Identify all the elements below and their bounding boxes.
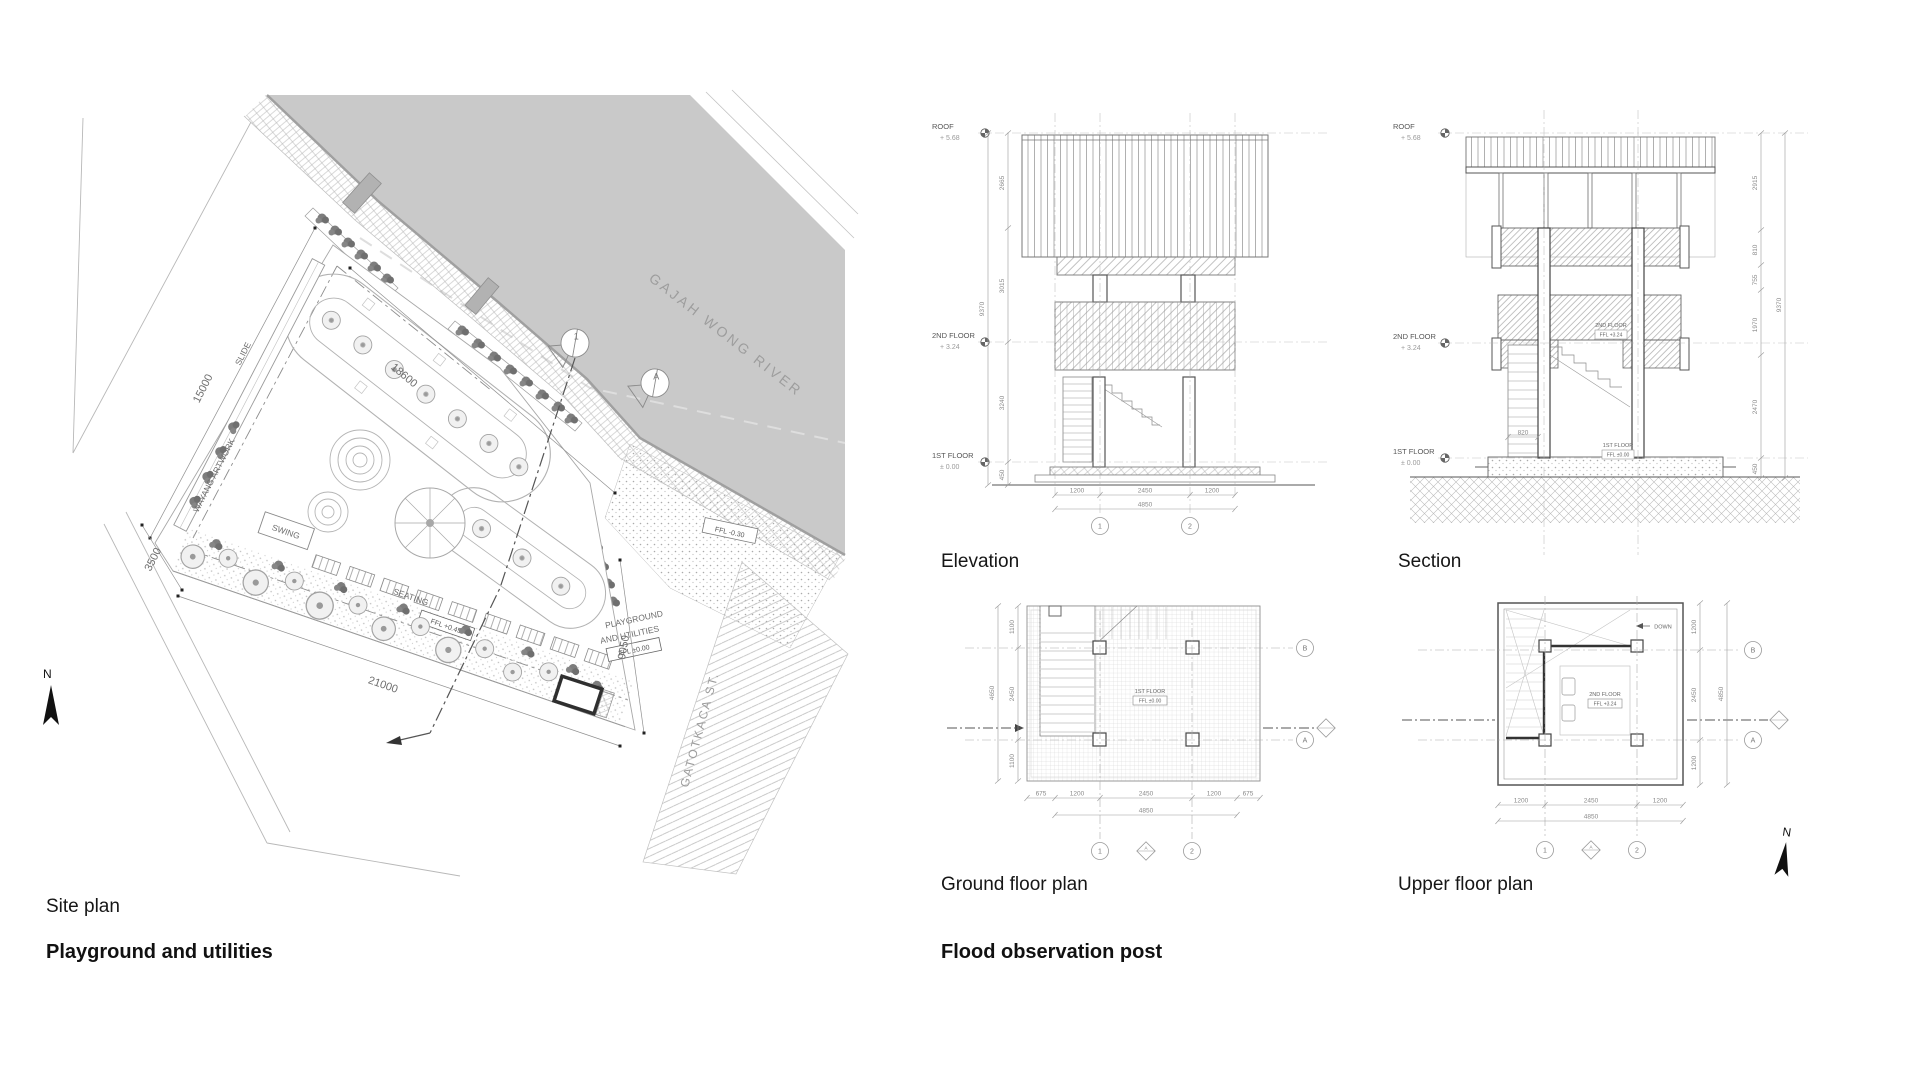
svg-text:1ST FLOOR: 1ST FLOOR <box>1393 447 1435 456</box>
dim-21000: 21000 <box>367 675 400 696</box>
svg-text:1: 1 <box>574 332 579 342</box>
ground-floor-caption: Ground floor plan <box>941 874 1088 896</box>
svg-text:1200: 1200 <box>1070 791 1085 798</box>
svg-text:1100: 1100 <box>1009 620 1016 634</box>
svg-text:2450: 2450 <box>1139 791 1154 798</box>
svg-text:4650: 4650 <box>989 685 996 700</box>
center-tag: 2ND FLOOR FFL +3.24 <box>1588 692 1622 708</box>
svg-text:ROOF: ROOF <box>932 122 954 131</box>
svg-text:450: 450 <box>999 469 1006 480</box>
right-title: Flood observation post <box>941 941 1162 964</box>
svg-text:675: 675 <box>1243 791 1254 798</box>
section-caption: Section <box>1398 551 1461 573</box>
svg-text:2450: 2450 <box>1584 798 1599 805</box>
svg-text:FFL ±0.00: FFL ±0.00 <box>1607 453 1630 459</box>
svg-text:2ND FLOOR: 2ND FLOOR <box>1589 692 1621 698</box>
street-paving <box>643 562 848 874</box>
round-plaza <box>395 488 465 558</box>
section-diamond-bottom: A <box>1582 841 1600 859</box>
svg-text:4850: 4850 <box>1718 686 1725 701</box>
elevation-drawing: ROOF + 5.68 2ND FLOOR + 3.24 1ST FLOOR ±… <box>930 95 1340 565</box>
left-dimensions <box>995 603 1021 783</box>
section-diamond-bottom: A <box>1137 842 1155 860</box>
svg-text:± 0.00: ± 0.00 <box>940 464 960 471</box>
grid-bubble-a: A <box>1745 732 1762 749</box>
svg-text:DOWN: DOWN <box>1654 625 1671 631</box>
drawing-sheet: { "captions": { "site_plan": "Site plan"… <box>0 0 1920 1080</box>
upper-floor-plan-drawing: DOWN 2ND FLOOR FFL +3.24 1200 2450 1200 … <box>1400 588 1820 888</box>
svg-text:FFL ±0.00: FFL ±0.00 <box>1139 699 1162 705</box>
svg-text:A: A <box>653 372 659 382</box>
grid-bubble-a: A <box>1297 732 1314 749</box>
bottom-dimensions <box>1024 795 1262 818</box>
svg-text:1200: 1200 <box>1514 798 1529 805</box>
svg-text:1200: 1200 <box>1070 488 1085 495</box>
grid-bubble-2: 2 <box>1182 518 1199 535</box>
svg-text:2450: 2450 <box>1138 488 1153 495</box>
svg-text:1: 1 <box>1098 524 1102 531</box>
svg-text:+ 5.68: + 5.68 <box>940 135 960 142</box>
svg-text:+ 5.68: + 5.68 <box>1401 135 1421 142</box>
level-1st: 1ST FLOOR ± 0.00 <box>932 451 989 471</box>
svg-text:2915: 2915 <box>1752 175 1759 190</box>
svg-text:1: 1 <box>1543 848 1547 855</box>
svg-text:2450: 2450 <box>1691 687 1698 702</box>
grid-bubble-2: 2 <box>1184 843 1201 860</box>
svg-text:9370: 9370 <box>1776 297 1783 312</box>
svg-text:2665: 2665 <box>999 175 1006 190</box>
level-roof: ROOF + 5.68 <box>932 122 989 142</box>
svg-text:+ 3.24: + 3.24 <box>1401 345 1421 352</box>
svg-text:755: 755 <box>1752 274 1759 285</box>
svg-text:2ND FLOOR: 2ND FLOOR <box>1393 332 1437 341</box>
grid-bubble-1: 1 <box>1092 843 1109 860</box>
svg-text:1200: 1200 <box>1207 791 1222 798</box>
north-arrow: N <box>1774 824 1795 876</box>
svg-text:FFL +3.24: FFL +3.24 <box>1600 333 1623 339</box>
svg-text:2ND FLOOR: 2ND FLOOR <box>932 331 976 340</box>
svg-text:1200: 1200 <box>1691 755 1698 770</box>
ground-floor-plan-drawing: 1ST FLOOR FFL ±0.00 1100 2450 1100 4650 … <box>945 593 1340 883</box>
vertical-dimensions <box>1758 130 1788 480</box>
svg-text:2: 2 <box>1190 849 1194 856</box>
level-2nd: 2ND FLOOR + 3.24 <box>1393 332 1449 352</box>
section-diamond-right <box>1317 719 1335 737</box>
building <box>992 135 1315 485</box>
svg-text:2470: 2470 <box>1752 399 1759 414</box>
north-arrow: N <box>43 667 59 725</box>
svg-text:A: A <box>1303 738 1308 745</box>
grid-bubble-1: 1 <box>1537 842 1554 859</box>
svg-text:1ST FLOOR: 1ST FLOOR <box>932 451 974 460</box>
svg-text:820: 820 <box>1518 430 1529 437</box>
upper-floor-caption: Upper floor plan <box>1398 874 1533 896</box>
svg-text:3015: 3015 <box>999 278 1006 293</box>
dim-15000: 15000 <box>191 372 216 405</box>
svg-text:3240: 3240 <box>999 395 1006 410</box>
svg-text:B: B <box>1751 648 1756 655</box>
svg-text:1100: 1100 <box>1009 754 1016 768</box>
elevation-caption: Elevation <box>941 551 1019 573</box>
svg-text:B: B <box>1303 646 1308 653</box>
site-plan-caption: Site plan <box>46 896 120 918</box>
svg-text:A: A <box>1589 845 1592 850</box>
right-dimensions <box>1697 600 1730 787</box>
svg-text:N: N <box>1782 825 1793 840</box>
svg-text:1200: 1200 <box>1653 798 1668 805</box>
grid-bubble-1: 1 <box>1092 518 1109 535</box>
level-1st: 1ST FLOOR ± 0.00 <box>1393 447 1449 467</box>
grid-bubble-b: B <box>1745 642 1762 659</box>
svg-text:A: A <box>1144 846 1147 851</box>
svg-text:4850: 4850 <box>1584 814 1599 821</box>
svg-text:4850: 4850 <box>1139 808 1154 815</box>
grid-bubble-b: B <box>1297 640 1314 657</box>
level-roof: ROOF + 5.68 <box>1393 122 1449 142</box>
level-2nd: 2ND FLOOR + 3.24 <box>932 331 989 351</box>
svg-text:2450: 2450 <box>1009 686 1016 701</box>
section-diamond-right <box>1770 711 1788 729</box>
svg-text:9370: 9370 <box>979 301 986 316</box>
site-title: Playground and utilities <box>46 941 273 964</box>
svg-text:1: 1 <box>1098 849 1102 856</box>
svg-text:675: 675 <box>1036 791 1047 798</box>
svg-text:+ 3.24: + 3.24 <box>940 344 960 351</box>
svg-text:810: 810 <box>1752 244 1759 255</box>
svg-text:N: N <box>43 667 52 681</box>
svg-text:1ST FLOOR: 1ST FLOOR <box>1603 443 1633 449</box>
site-plan-drawing: GAJAH WONG RIVER FFL -0.30 GATOTKACA ST. <box>30 88 860 878</box>
svg-text:1200: 1200 <box>1691 619 1698 634</box>
svg-text:450: 450 <box>1752 463 1759 474</box>
svg-text:1970: 1970 <box>1752 317 1759 332</box>
svg-text:2: 2 <box>1635 848 1639 855</box>
grid-bubble-2: 2 <box>1629 842 1646 859</box>
svg-text:4850: 4850 <box>1138 502 1153 509</box>
svg-text:ROOF: ROOF <box>1393 122 1415 131</box>
center-tag: 1ST FLOOR FFL ±0.00 <box>1133 689 1167 705</box>
svg-text:2: 2 <box>1188 524 1192 531</box>
svg-text:± 0.00: ± 0.00 <box>1401 460 1421 467</box>
svg-text:FFL +3.24: FFL +3.24 <box>1594 702 1617 708</box>
svg-text:1ST FLOOR: 1ST FLOOR <box>1135 689 1165 695</box>
vertical-dimensions <box>985 130 1011 487</box>
svg-text:2ND FLOOR: 2ND FLOOR <box>1595 323 1627 329</box>
section-drawing: ROOF + 5.68 2ND FLOOR + 3.24 1ST FLOOR ±… <box>1393 95 1818 575</box>
svg-text:1200: 1200 <box>1205 488 1220 495</box>
svg-text:A: A <box>1751 738 1756 745</box>
